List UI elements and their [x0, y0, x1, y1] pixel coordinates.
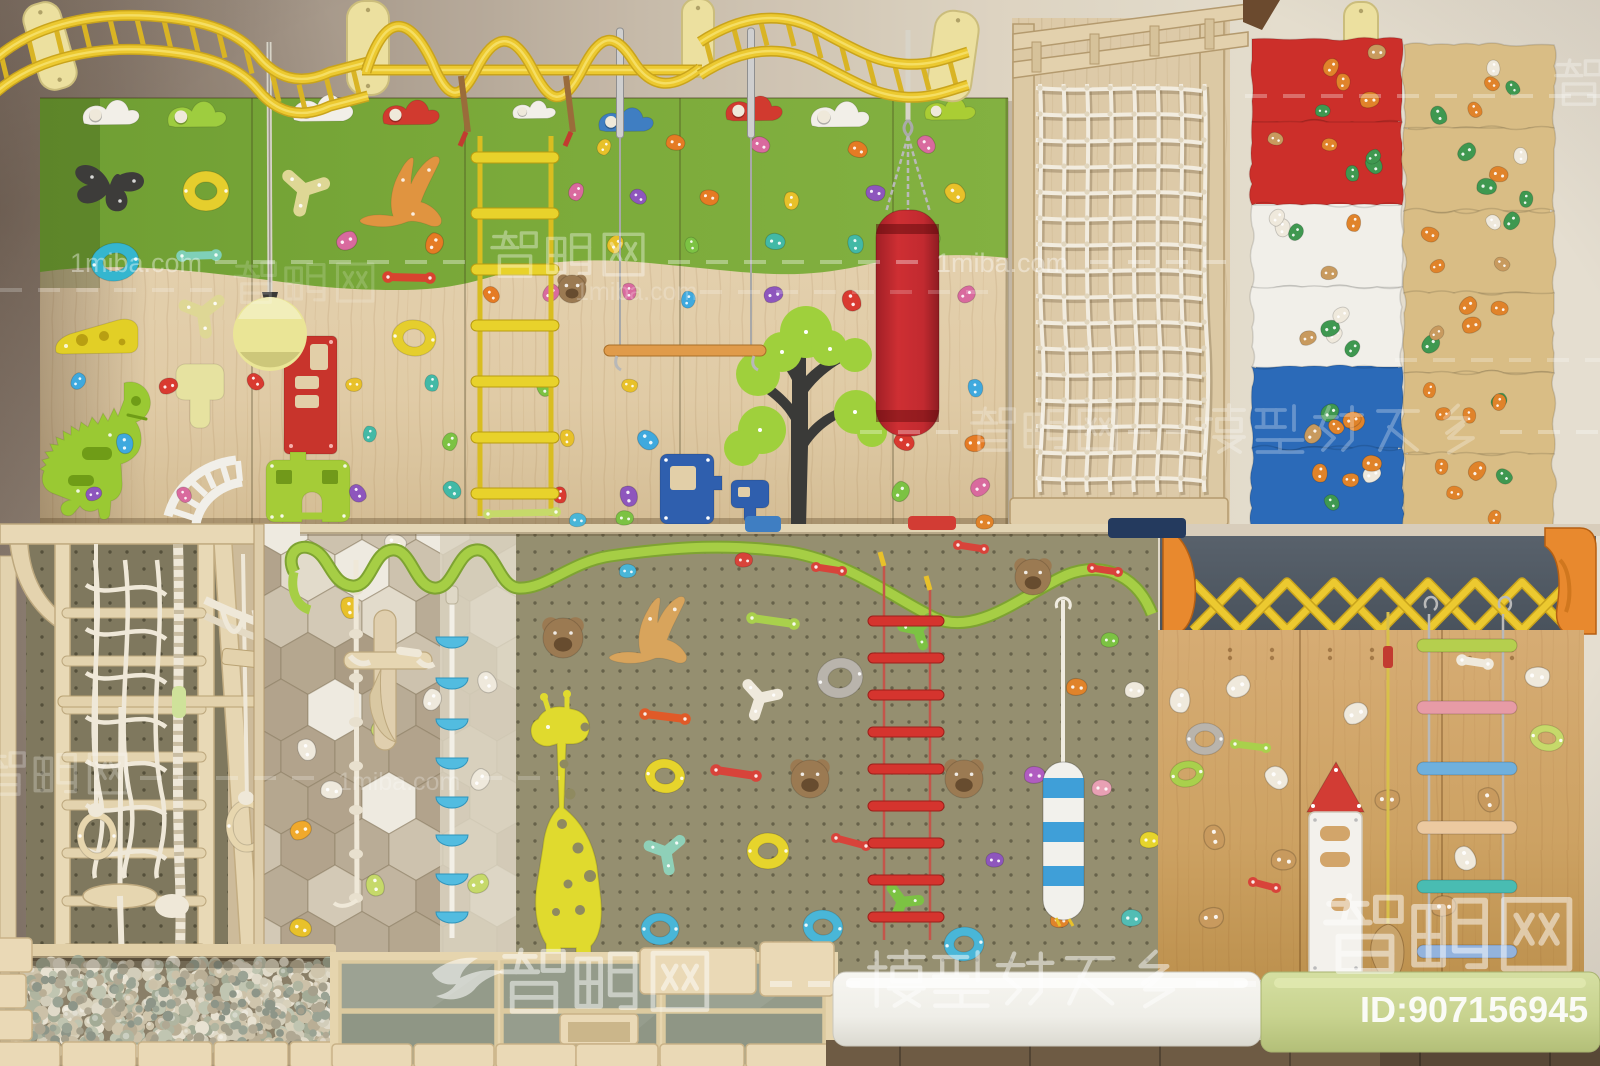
svg-text:ID:907156945: ID:907156945: [1360, 989, 1588, 1030]
svg-text:1miba.com: 1miba.com: [338, 768, 460, 796]
svg-text:1miba.com: 1miba.com: [70, 248, 202, 278]
svg-text:1miba.com: 1miba.com: [936, 248, 1068, 278]
svg-text:1miba.com: 1miba.com: [575, 278, 697, 306]
